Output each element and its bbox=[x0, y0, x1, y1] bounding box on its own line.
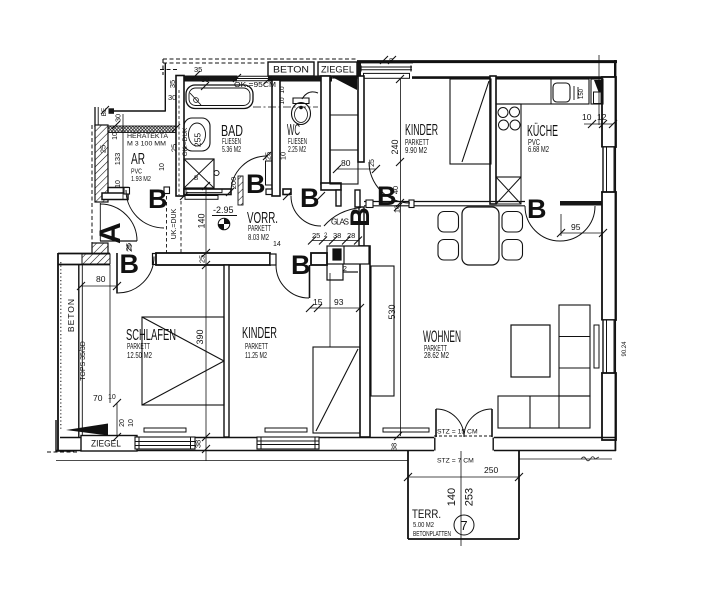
svg-text:ZIEGEL: ZIEGEL bbox=[91, 439, 121, 449]
svg-text:70: 70 bbox=[93, 393, 103, 403]
svg-text:ZIEGEL: ZIEGEL bbox=[321, 65, 354, 75]
svg-text:B: B bbox=[194, 175, 198, 182]
svg-text:15: 15 bbox=[313, 297, 323, 307]
svg-text:BETON: BETON bbox=[273, 65, 309, 75]
svg-text:OK.=DUK: OK.=DUK bbox=[182, 127, 189, 156]
svg-text:B: B bbox=[300, 183, 320, 213]
svg-text:2.25 M2: 2.25 M2 bbox=[288, 145, 306, 154]
svg-text:5.00 M2: 5.00 M2 bbox=[413, 522, 434, 529]
svg-text:90.24: 90.24 bbox=[622, 341, 628, 357]
svg-text:10: 10 bbox=[582, 112, 592, 122]
svg-text:OK.=95CM: OK.=95CM bbox=[234, 82, 276, 89]
svg-text:253: 253 bbox=[464, 488, 476, 506]
svg-text:2: 2 bbox=[343, 266, 347, 273]
svg-text:200: 200 bbox=[229, 177, 238, 190]
svg-text:28: 28 bbox=[347, 231, 355, 240]
svg-text:A: A bbox=[94, 222, 127, 244]
svg-text:HERATEKTA: HERATEKTA bbox=[127, 133, 169, 140]
svg-text:PARKETT: PARKETT bbox=[248, 224, 271, 233]
svg-text:BE: BE bbox=[101, 107, 108, 116]
svg-text:25: 25 bbox=[264, 152, 273, 160]
svg-text:10: 10 bbox=[115, 180, 122, 188]
svg-text:10: 10 bbox=[128, 419, 135, 427]
svg-text:240: 240 bbox=[390, 139, 400, 154]
svg-text:35: 35 bbox=[168, 80, 177, 88]
svg-text:6.68 M2: 6.68 M2 bbox=[528, 145, 549, 154]
svg-text:30: 30 bbox=[168, 93, 176, 102]
svg-text:5.36 M2: 5.36 M2 bbox=[222, 145, 241, 154]
svg-text:8: 8 bbox=[389, 56, 393, 65]
svg-text:28.62 M2: 28.62 M2 bbox=[424, 351, 449, 360]
svg-text:TERR.: TERR. bbox=[412, 507, 441, 521]
svg-text:1.93 M2: 1.93 M2 bbox=[131, 176, 151, 183]
svg-text:25: 25 bbox=[369, 159, 376, 167]
svg-text:B: B bbox=[246, 169, 266, 199]
svg-text:10: 10 bbox=[112, 132, 119, 140]
svg-text:10: 10 bbox=[159, 163, 166, 171]
svg-text:25: 25 bbox=[170, 144, 179, 152]
svg-text:35: 35 bbox=[194, 65, 202, 74]
svg-text:20: 20 bbox=[119, 419, 126, 427]
svg-text:25: 25 bbox=[312, 231, 320, 240]
svg-text:12.50 M2: 12.50 M2 bbox=[127, 351, 152, 360]
svg-text:140: 140 bbox=[197, 213, 207, 228]
svg-text:B: B bbox=[148, 184, 168, 214]
svg-text:38: 38 bbox=[333, 231, 341, 240]
svg-text:STZ = 7 CM: STZ = 7 CM bbox=[437, 458, 474, 465]
svg-text:10: 10 bbox=[279, 86, 286, 94]
svg-text:7: 7 bbox=[460, 518, 467, 533]
svg-text:B: B bbox=[345, 207, 375, 227]
svg-text:80: 80 bbox=[96, 274, 106, 284]
svg-text:PVC: PVC bbox=[131, 169, 142, 176]
svg-text:KINDER: KINDER bbox=[405, 122, 438, 139]
svg-text:30: 30 bbox=[114, 114, 123, 122]
svg-text:BETONPLATTEN: BETONPLATTEN bbox=[413, 531, 451, 538]
svg-text:8.03 M2: 8.03 M2 bbox=[248, 233, 269, 242]
svg-text:B: B bbox=[291, 250, 311, 280]
svg-text:-2.95: -2.95 bbox=[213, 205, 234, 215]
svg-text:12: 12 bbox=[597, 112, 607, 122]
svg-text:95: 95 bbox=[571, 222, 581, 232]
svg-text:530: 530 bbox=[387, 304, 397, 319]
svg-text:255: 255 bbox=[193, 133, 203, 147]
svg-text:KINDER: KINDER bbox=[242, 325, 277, 342]
svg-text:B: B bbox=[120, 249, 140, 279]
svg-text:UK.=DUK: UK.=DUK bbox=[171, 208, 178, 239]
svg-text:PARKETT: PARKETT bbox=[245, 342, 268, 351]
svg-text:10: 10 bbox=[279, 152, 288, 160]
svg-text:9.90 M2: 9.90 M2 bbox=[405, 146, 427, 155]
svg-text:11.25 M2: 11.25 M2 bbox=[245, 351, 267, 360]
svg-text:93: 93 bbox=[334, 297, 344, 307]
svg-text:38: 38 bbox=[390, 443, 399, 451]
svg-text:250: 250 bbox=[484, 465, 498, 475]
svg-text:B: B bbox=[527, 194, 547, 224]
svg-text:10: 10 bbox=[108, 394, 116, 401]
svg-text:38: 38 bbox=[194, 440, 203, 448]
svg-text:STZ = 15 CM: STZ = 15 CM bbox=[437, 429, 478, 436]
svg-text:M 3 100 MM: M 3 100 MM bbox=[127, 141, 166, 148]
svg-text:TOPS 35/3D: TOPS 35/3D bbox=[80, 341, 87, 381]
svg-text:25: 25 bbox=[198, 255, 207, 263]
svg-text:30: 30 bbox=[201, 75, 209, 84]
svg-text:BETON: BETON bbox=[66, 298, 76, 332]
svg-text:140: 140 bbox=[446, 488, 458, 506]
svg-text:150: 150 bbox=[579, 88, 585, 99]
svg-text:B: B bbox=[377, 181, 397, 211]
svg-text:10: 10 bbox=[279, 97, 286, 105]
svg-text:PARKETT: PARKETT bbox=[127, 342, 150, 351]
svg-text:390: 390 bbox=[195, 329, 205, 344]
svg-text:80: 80 bbox=[341, 158, 351, 168]
svg-text:AR: AR bbox=[131, 151, 145, 168]
svg-text:25: 25 bbox=[99, 145, 108, 153]
svg-text:14: 14 bbox=[273, 241, 281, 248]
svg-text:133: 133 bbox=[113, 153, 122, 166]
